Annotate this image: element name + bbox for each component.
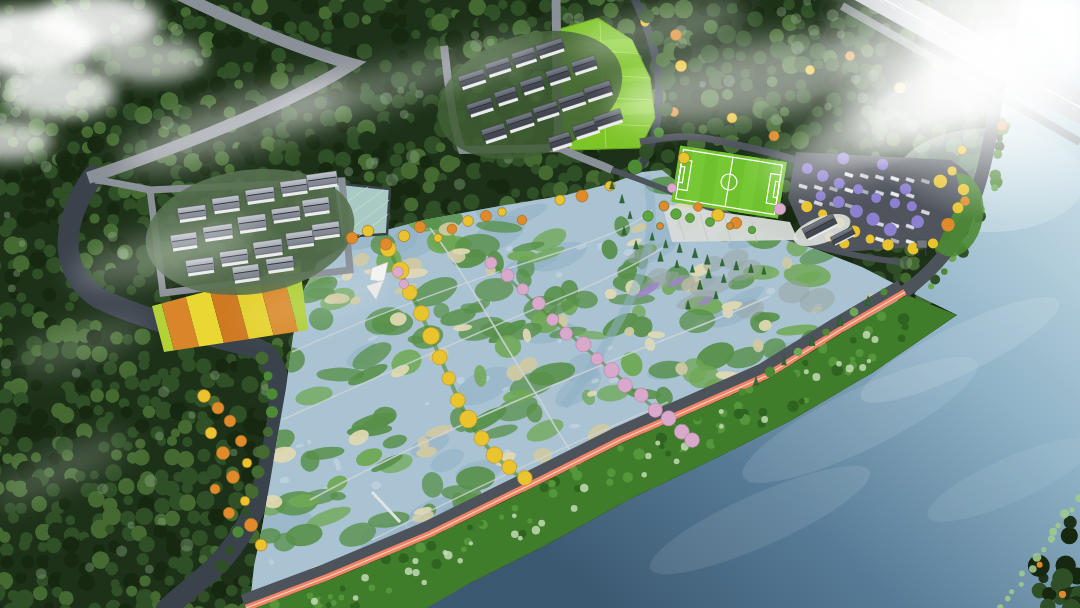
forest-canopy (226, 585, 238, 597)
forest-canopy (273, 139, 286, 152)
forest-canopy (125, 348, 137, 360)
forest-canopy-highlight (155, 432, 164, 441)
cherry-tree (634, 388, 648, 402)
forest-canopy (233, 2, 243, 12)
autumn-tree (555, 195, 565, 205)
cherry-tree (668, 184, 677, 193)
far-bank-fringe (1019, 582, 1024, 587)
levee-tree (487, 528, 498, 539)
levee-pale-shrub (846, 365, 854, 373)
stream-bank-tree (639, 144, 654, 159)
cherry-tree (517, 284, 528, 295)
forest-canopy (753, 119, 768, 134)
forest-canopy (256, 47, 272, 63)
autumn-tree (941, 218, 954, 231)
forest-canopy (331, 29, 348, 46)
forest-canopy (90, 214, 100, 224)
forest-canopy (1, 555, 14, 568)
levee-pale-shrub (412, 569, 419, 576)
forest-canopy (196, 491, 214, 509)
autumn-tree (223, 507, 234, 518)
autumn-tree (227, 471, 240, 484)
jacaranda-tree (833, 196, 845, 208)
forest-canopy (59, 572, 78, 591)
forest-canopy (95, 592, 105, 602)
forest-canopy (29, 251, 46, 268)
forest-canopy (661, 149, 675, 163)
forest-canopy (154, 498, 170, 514)
forest-canopy (75, 514, 90, 529)
forest-canopy (438, 180, 448, 190)
ginkgo-tree (459, 410, 477, 428)
forest-canopy (362, 15, 371, 24)
forest-canopy (139, 575, 150, 586)
levee-tree (610, 459, 616, 465)
forest-canopy (148, 169, 165, 186)
levee-tree (799, 399, 805, 405)
forest-canopy (208, 508, 225, 525)
forest-canopy (16, 293, 26, 303)
forest-canopy (299, 154, 310, 165)
forest-canopy (76, 307, 86, 317)
ginkgo-tree (518, 471, 533, 486)
forest-canopy (48, 209, 59, 220)
forest-canopy (65, 302, 74, 311)
forest-canopy (59, 591, 74, 606)
levee-tree (340, 586, 346, 592)
forest-canopy (511, 189, 520, 198)
autumn-tree (255, 539, 267, 551)
levee-pale-shrub (867, 359, 871, 363)
levee-tree (519, 503, 529, 513)
forest-canopy-highlight (171, 24, 183, 36)
cloud-puff (95, 38, 205, 82)
forest-canopy (454, 11, 472, 29)
forest-canopy (449, 157, 460, 168)
forest-canopy-highlight (1, 359, 11, 369)
canal-hedge-tree (242, 508, 251, 517)
levee-tree (850, 337, 856, 343)
forest-canopy (177, 451, 194, 468)
autumn-tree (414, 221, 426, 233)
forest-canopy (17, 437, 32, 452)
forest-canopy-highlight (36, 568, 47, 579)
levee-tree (694, 414, 701, 421)
forest-canopy (175, 556, 193, 574)
levee-tree (898, 334, 906, 342)
forest-canopy (747, 11, 763, 27)
forest-canopy (120, 90, 135, 105)
forest-canopy (0, 437, 9, 446)
autumn-tree (224, 415, 236, 427)
levee-tree (527, 518, 532, 523)
autumn-tree (212, 402, 224, 414)
forest-canopy (393, 143, 405, 155)
autumn-tree (242, 458, 252, 468)
shore-tree (765, 367, 775, 377)
far-bank-fringe (1041, 547, 1046, 552)
scene-svg: Aerial rendering of a riverside wetland … (0, 0, 1080, 608)
levee-pale-shrub (580, 484, 589, 493)
forest-canopy (511, 0, 527, 16)
forest-canopy (372, 42, 390, 60)
plaza-tree (686, 214, 695, 223)
yellow-tree (882, 239, 893, 250)
autumn-tree (198, 390, 211, 403)
jacaranda-tree (853, 184, 863, 194)
forest-canopy (135, 419, 149, 433)
forest-canopy-highlight (158, 518, 166, 526)
forest-canopy (46, 277, 56, 287)
forest-canopy-highlight (19, 240, 26, 247)
forest-canopy (527, 17, 538, 28)
ginkgo-tree (450, 393, 465, 408)
shore-tree (739, 389, 746, 396)
levee-pale-shrub (353, 595, 359, 601)
far-bank-tree (1061, 527, 1078, 544)
forest-canopy (90, 389, 104, 403)
levee-tree (426, 541, 436, 551)
cherry-tree (604, 363, 619, 378)
levee-pale-shrub (443, 550, 448, 555)
levee-tree (386, 587, 392, 593)
forest-canopy (199, 346, 210, 357)
forest-canopy (126, 586, 137, 597)
cherry-tree (661, 411, 676, 426)
levee-tree (432, 559, 442, 569)
autumn-tree (447, 224, 457, 234)
cloud-puff (0, 66, 116, 118)
levee-tree (713, 437, 724, 448)
forest-canopy (182, 358, 196, 372)
far-bank-fringe (1029, 565, 1037, 573)
forest-canopy (285, 63, 294, 72)
forest-canopy (187, 510, 200, 523)
forest-canopy (42, 288, 56, 302)
forest-canopy (46, 538, 62, 554)
forest-canopy-highlight (188, 411, 195, 418)
forest-canopy (424, 167, 440, 183)
plaza-tree (657, 223, 664, 230)
levee-tree (691, 449, 698, 456)
forest-canopy (106, 107, 118, 119)
stream-bank-tree (654, 127, 664, 137)
levee-tree (545, 516, 551, 522)
forest-canopy (107, 202, 120, 215)
forest-canopy (125, 376, 139, 390)
forest-canopy-highlight (180, 538, 193, 551)
forest-canopy (509, 166, 521, 178)
forest-canopy (227, 32, 243, 48)
canal-hedge-tree (256, 352, 269, 365)
far-bank-fringe (1060, 509, 1069, 518)
forest-canopy (87, 135, 105, 153)
forest-canopy (401, 162, 418, 179)
levee-tree (618, 462, 627, 471)
canal-hedge-tree (266, 406, 278, 418)
forest-canopy (271, 48, 286, 63)
forest-canopy (53, 300, 63, 310)
jacaranda-tree (884, 223, 897, 236)
levee-tree (831, 364, 843, 376)
forest-canopy (118, 478, 135, 495)
forest-canopy (34, 239, 45, 250)
forest-canopy (126, 285, 136, 295)
forest-canopy (50, 387, 65, 402)
far-bank-tree (1052, 568, 1073, 589)
levee-pale-shrub (571, 505, 578, 512)
forest-canopy (357, 43, 373, 59)
forest-canopy (319, 135, 329, 145)
levee-tree (540, 483, 549, 492)
forest-canopy (178, 167, 191, 180)
ginkgo-tree (474, 431, 489, 446)
forest-canopy (15, 503, 27, 515)
far-bank-fringe (1069, 507, 1074, 512)
levee-tree (898, 313, 910, 325)
forest-canopy (269, 150, 284, 165)
levee-tree (512, 505, 519, 512)
levee-tree (606, 479, 613, 486)
forest-canopy (37, 443, 47, 453)
plaza-tree (748, 226, 755, 233)
forest-canopy (11, 328, 27, 344)
forest-canopy (47, 230, 59, 242)
forest-canopy (211, 581, 228, 598)
forest-canopy (431, 14, 449, 32)
forest-canopy-highlight (72, 368, 81, 377)
forest-canopy (403, 181, 420, 198)
forest-canopy (404, 197, 418, 211)
forest-canopy (780, 121, 793, 134)
far-bank-fringe (1005, 596, 1011, 602)
forest-canopy (306, 135, 321, 150)
levee-pale-shrub (719, 409, 724, 414)
levee-tree (767, 379, 776, 388)
levee-pale-shrub (645, 453, 651, 459)
forest-canopy-highlight (454, 179, 465, 190)
forest-canopy (87, 239, 103, 255)
forest-canopy (305, 27, 320, 42)
forest-canopy (200, 166, 210, 176)
forest-canopy (19, 539, 31, 551)
levee-pale-shrub (642, 472, 647, 477)
forest-canopy (8, 512, 19, 523)
levee-tree (467, 525, 473, 531)
forest-canopy (0, 543, 14, 557)
forest-canopy-highlight (400, 110, 409, 119)
forest-canopy (105, 525, 114, 534)
forest-canopy (182, 437, 192, 447)
forest-canopy (31, 512, 42, 523)
forest-canopy (33, 586, 47, 600)
shore-tree (822, 328, 829, 335)
reed-patch (782, 257, 792, 269)
autumn-tree (346, 232, 358, 244)
shore-shrub (941, 268, 948, 275)
forest-canopy (79, 405, 93, 419)
forest-canopy-highlight (97, 483, 108, 494)
forest-canopy (62, 182, 74, 194)
forest-canopy (81, 126, 93, 138)
forest-canopy (406, 12, 424, 30)
forest-canopy (21, 518, 31, 528)
forest-canopy-highlight (406, 150, 419, 163)
forest-canopy (192, 530, 208, 546)
forest-canopy (165, 576, 175, 586)
forest-canopy (379, 12, 396, 29)
cherry-tree (399, 279, 408, 288)
forest-canopy (539, 0, 552, 13)
levee-tree (389, 567, 396, 574)
forest-canopy (487, 199, 496, 208)
shore-tree (850, 308, 859, 317)
forest-canopy-highlight (791, 13, 802, 24)
forest-canopy (494, 179, 510, 195)
forest-canopy (375, 0, 386, 11)
forest-canopy (34, 291, 43, 300)
forest-canopy-highlight (85, 563, 94, 572)
forest-canopy (254, 71, 270, 87)
forest-canopy (553, 182, 568, 197)
plaza-tree (643, 211, 653, 221)
forest-canopy (153, 569, 165, 581)
forest-canopy (22, 270, 31, 279)
autumn-tree (398, 230, 409, 241)
cherry-tree (560, 327, 573, 340)
levee-pale-shrub (719, 424, 724, 429)
levee-tree (785, 371, 797, 383)
forest-canopy (126, 541, 139, 554)
forest-canopy (527, 187, 539, 199)
forest-canopy (66, 516, 76, 526)
forest-canopy (131, 223, 147, 239)
forest-canopy-highlight (158, 386, 169, 397)
forest-canopy-highlight (108, 232, 118, 242)
levee-tree (478, 521, 483, 526)
levee-pale-shrub (674, 458, 680, 464)
forest-canopy (109, 352, 119, 362)
forest-canopy (149, 350, 162, 363)
autumn-tree (769, 131, 779, 141)
forest-canopy (103, 361, 117, 375)
forest-canopy (46, 198, 55, 207)
levee-pale-shrub (655, 441, 660, 446)
forest-canopy-highlight (4, 212, 10, 218)
forest-canopy (196, 358, 212, 374)
forest-canopy (495, 168, 508, 181)
jacaranda-tree (816, 191, 826, 201)
forest-canopy (498, 23, 508, 33)
levee-tree (665, 451, 671, 457)
levee-tree (499, 514, 504, 519)
autumn-tree (498, 208, 506, 216)
levee-tree (623, 472, 633, 482)
forest-canopy (30, 379, 42, 391)
forest-canopy (31, 496, 47, 512)
ginkgo-tree (486, 447, 502, 463)
far-bank-fringe (1033, 553, 1042, 562)
levee-pale-shrub (512, 513, 517, 518)
autumn-tree (678, 152, 689, 163)
forest-canopy (78, 574, 95, 591)
cherry-tree (685, 433, 700, 448)
forest-canopy (225, 378, 235, 388)
levee-tree (398, 576, 404, 582)
levee-tree (758, 384, 766, 392)
jacaranda-tree (911, 215, 924, 228)
autumn-tree (517, 215, 527, 225)
cherry-tree (591, 353, 603, 365)
forest-canopy (2, 345, 18, 361)
autumn-tree (210, 484, 220, 494)
forest-canopy (223, 62, 240, 79)
forest-canopy (122, 228, 133, 239)
forest-canopy (586, 5, 601, 20)
forest-canopy (364, 171, 375, 182)
levee-tree (449, 536, 459, 546)
forest-canopy-highlight (210, 371, 220, 381)
forest-canopy (271, 0, 284, 13)
levee-tree (678, 451, 689, 462)
levee-tree (326, 602, 332, 608)
levee-tree (651, 452, 659, 460)
cherry-tree (547, 314, 559, 326)
forest-canopy (187, 378, 198, 389)
canal-hedge-tree (232, 526, 243, 537)
forest-canopy (231, 48, 240, 57)
yellow-tree (866, 235, 875, 244)
far-bank-fringe (1009, 589, 1014, 594)
forest-canopy (63, 537, 79, 553)
levee-tree (399, 553, 409, 563)
forest-canopy (180, 528, 190, 538)
levee-tree (607, 468, 616, 477)
forest-canopy (477, 15, 491, 29)
autumn-tree (463, 216, 474, 227)
levee-pale-shrub (412, 558, 418, 564)
canal-hedge-tree (256, 445, 270, 459)
forest-canopy (179, 494, 196, 511)
levee-tree (545, 505, 553, 513)
forest-canopy-highlight (563, 13, 574, 24)
forest-canopy (31, 452, 41, 462)
forest-canopy (18, 403, 31, 416)
jacaranda-tree (890, 198, 900, 208)
levee-pale-shrub (405, 568, 413, 576)
levee-pale-shrub (361, 574, 369, 582)
levee-pale-shrub (761, 416, 768, 423)
levee-pale-shrub (804, 369, 809, 374)
forest-canopy (243, 62, 254, 73)
forest-canopy-highlight (145, 475, 158, 488)
forest-canopy (22, 555, 35, 568)
forest-canopy (38, 542, 48, 552)
forest-canopy-highlight (145, 565, 154, 574)
levee-pale-shrub (518, 536, 523, 541)
levee-pale-shrub (311, 598, 318, 605)
forest-canopy (15, 573, 26, 584)
levee-tree (633, 448, 645, 460)
forest-canopy (143, 406, 156, 419)
forest-canopy (111, 585, 122, 596)
shore-shrub (928, 283, 934, 289)
forest-canopy (167, 436, 177, 446)
levee-tree (503, 531, 509, 537)
forest-canopy-highlight (41, 161, 52, 172)
forest-canopy (242, 53, 251, 62)
forest-canopy (126, 208, 140, 222)
